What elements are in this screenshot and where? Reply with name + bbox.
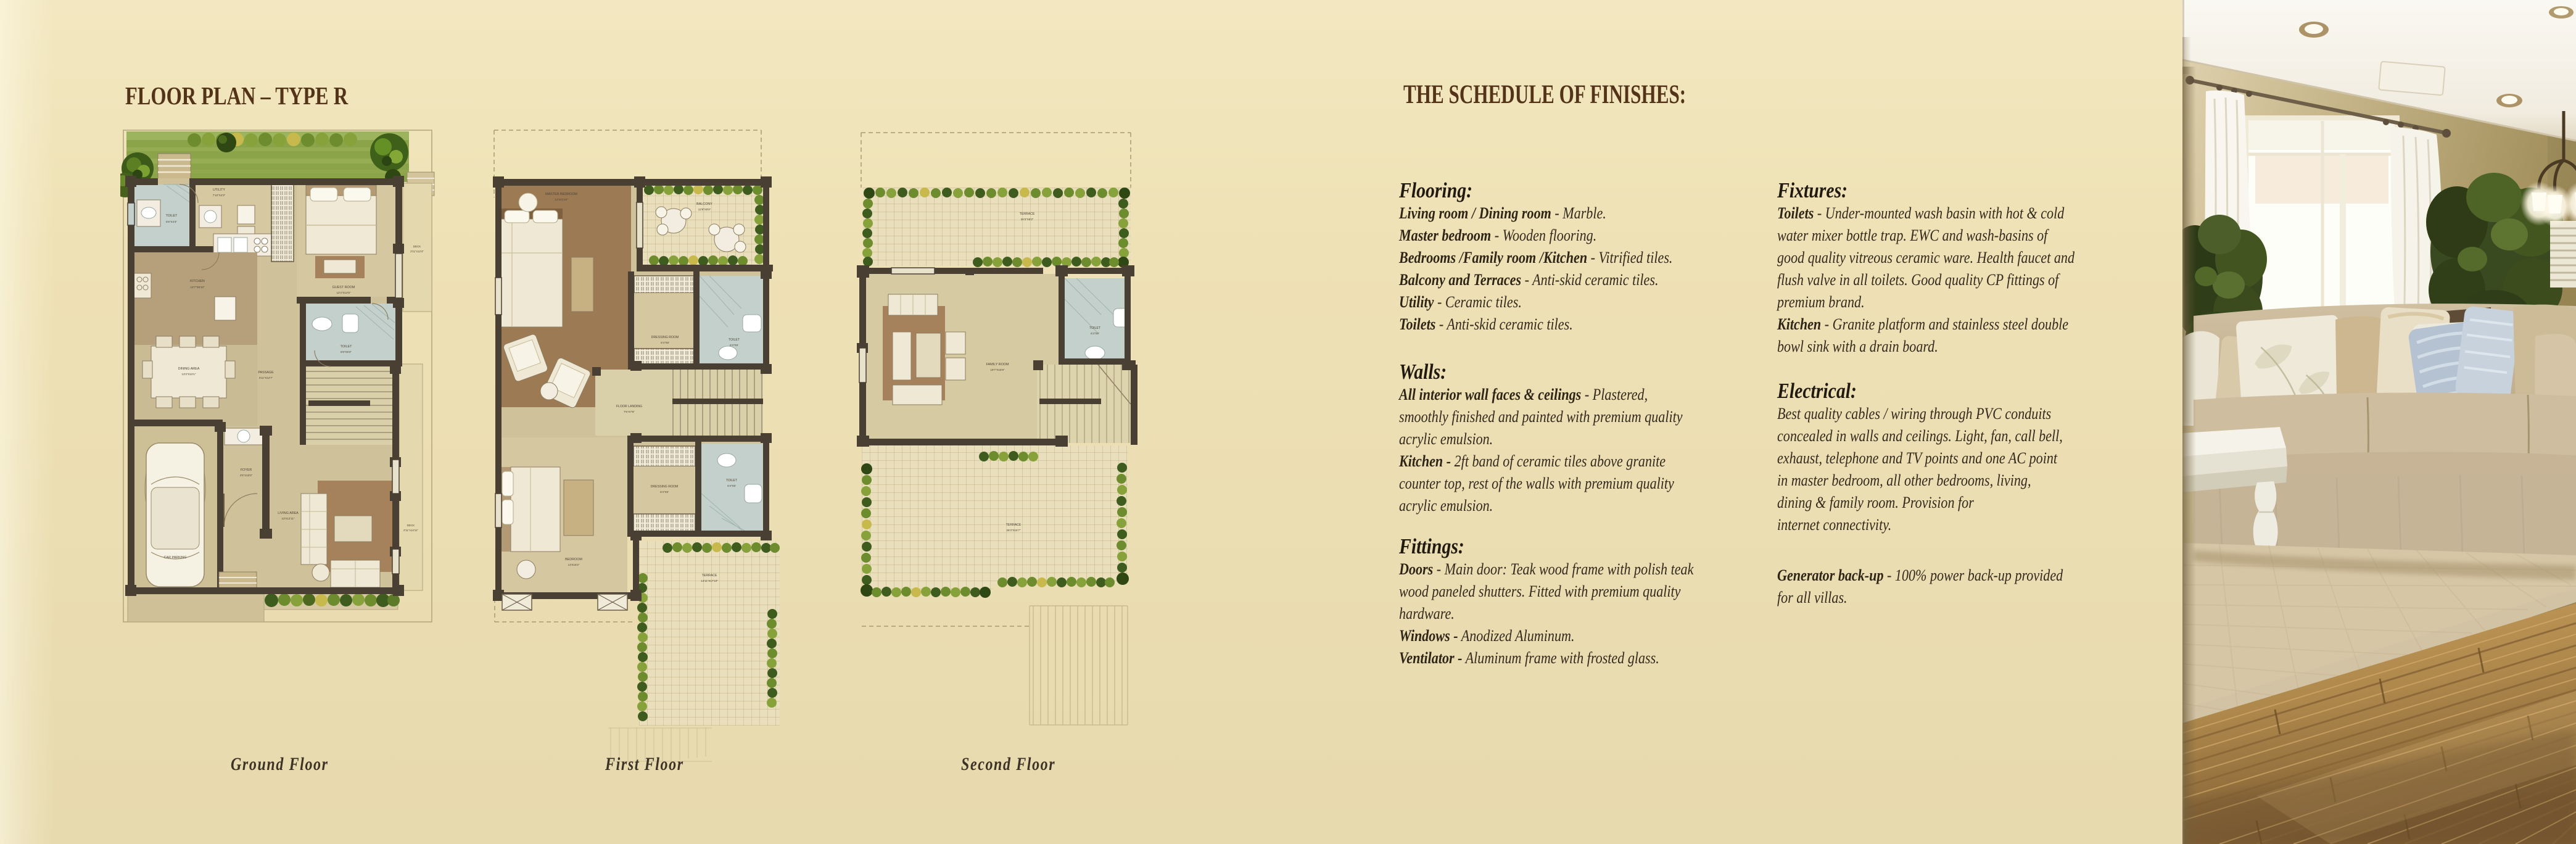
svg-text:TOILET: TOILET [726,479,738,482]
svg-text:UTILITY: UTILITY [213,188,225,192]
svg-text:PASSAGE: PASSAGE [258,371,274,374]
svg-text:7'10"X4'3": 7'10"X4'3" [213,194,226,197]
svg-text:12'4"X12'5": 12'4"X12'5" [337,291,351,294]
svg-text:26'3"X8'3": 26'3"X8'3" [1021,218,1034,221]
svg-text:6'4"X9': 6'4"X9' [730,344,738,347]
svg-text:BEDROOM: BEDROOM [565,558,582,561]
svg-text:13'7"X8'10": 13'7"X8'10" [191,286,205,289]
svg-text:12'X21'10": 12'X21'10" [555,198,568,201]
svg-text:FOYER: FOYER [241,468,252,472]
svg-text:LIVING AREA: LIVING AREA [278,511,299,515]
svg-text:4'5"X10'0": 4'5"X10'0" [240,474,253,477]
svg-text:BALCONY: BALCONY [696,202,712,206]
svg-text:12'8"X8'9": 12'8"X8'9" [698,208,711,211]
svg-text:MASTER BEDROOM: MASTER BEDROOM [545,192,577,196]
svg-text:TERRACE: TERRACE [702,574,717,577]
svg-text:7'6"X7'5": 7'6"X7'5" [624,410,635,413]
svg-text:2'11"x12'4": 2'11"x12'4" [410,250,424,253]
svg-text:6'4"X9': 6'4"X9' [727,484,736,487]
svg-text:TOILET: TOILET [166,214,178,218]
svg-text:5'5"X4'3": 5'5"X4'3" [166,220,177,223]
svg-text:TOILET: TOILET [1089,326,1101,330]
svg-text:DECK: DECK [407,524,415,527]
svg-text:TOILET: TOILET [341,345,352,349]
svg-text:6'4"X9': 6'4"X9' [660,490,669,494]
svg-text:3'11"X12'7": 3'11"X12'7" [259,376,273,379]
svg-text:DECK: DECK [413,245,421,248]
svg-text:FAMILY ROOM: FAMILY ROOM [986,363,1009,366]
svg-text:DRESSING ROOM: DRESSING ROOM [651,336,679,339]
svg-text:26'3"X15'7": 26'3"X15'7" [1007,529,1021,532]
svg-text:FLOOR LANDING: FLOOR LANDING [616,405,642,408]
svg-text:TOILET: TOILET [729,338,740,342]
svg-text:6'4"X9': 6'4"X9' [661,341,669,344]
svg-text:14'11"X17'10": 14'11"X17'10" [701,579,718,582]
svg-text:13'X16'2": 13'X16'2" [568,563,580,566]
svg-text:TERRACE: TERRACE [1006,523,1022,527]
svg-text:KITCHEN: KITCHEN [190,279,205,283]
svg-text:DINING AREA: DINING AREA [178,367,200,371]
svg-text:DRESSING ROOM: DRESSING ROOM [651,485,679,489]
svg-text:CAR PARKING: CAR PARKING [164,556,187,560]
svg-text:6'8"X5'3": 6'8"X5'3" [341,350,352,354]
svg-text:6'4"X9': 6'4"X9' [1091,332,1099,335]
svg-text:TERRACE: TERRACE [1020,212,1035,216]
svg-text:19'7"X16'9": 19'7"X16'9" [991,368,1005,371]
svg-text:13'3"X10'1": 13'3"X10'1" [182,373,196,376]
svg-text:13'X12'11": 13'X12'11" [282,517,295,520]
svg-text:2'11"x14'11": 2'11"x14'11" [403,529,418,532]
svg-text:GUEST ROOM: GUEST ROOM [332,286,355,289]
